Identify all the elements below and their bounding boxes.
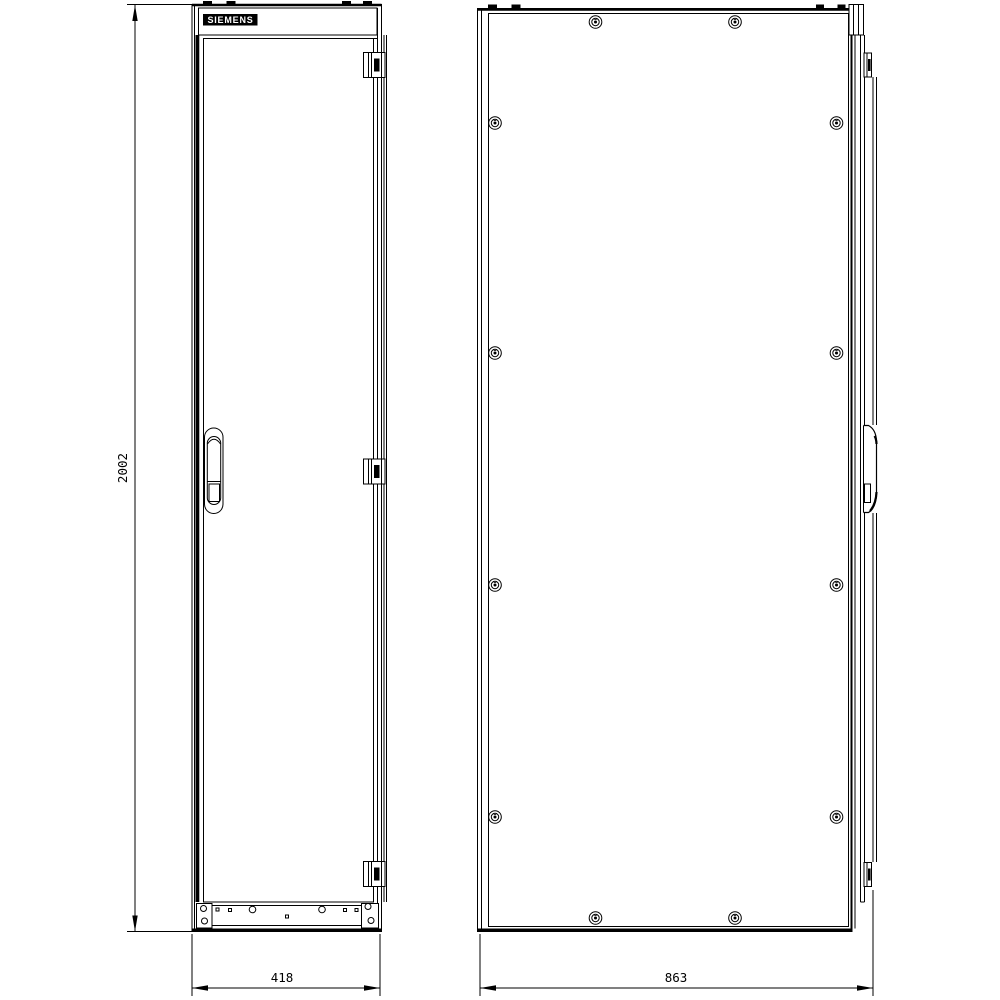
screw-icon xyxy=(830,117,843,130)
screw-icon xyxy=(830,811,843,824)
door-top-rail xyxy=(849,5,864,36)
hinge-top-icon xyxy=(364,53,386,78)
screw-icon xyxy=(489,117,502,130)
height-dimension-label: 2002 xyxy=(115,453,130,483)
width-dimension-label: 418 xyxy=(271,970,294,985)
screw-icon xyxy=(489,811,502,824)
cabinet-technical-drawing: SIEMENS xyxy=(0,0,1000,1000)
door-edge-profile xyxy=(849,5,877,929)
hinge-middle-icon xyxy=(364,459,386,484)
hinge-bottom-side-icon xyxy=(864,863,872,887)
door-handle xyxy=(205,428,224,514)
cabinet-body-side xyxy=(478,9,853,932)
door-handle-profile xyxy=(864,426,877,513)
top-tabs-side xyxy=(488,5,846,9)
depth-dimension-label: 863 xyxy=(665,970,688,985)
screw-icon xyxy=(729,16,742,29)
front-view: SIEMENS xyxy=(192,1,387,932)
hinge-top-side-icon xyxy=(864,53,872,77)
dimension-height: 2002 xyxy=(115,5,192,932)
siemens-logo-text: SIEMENS xyxy=(207,15,253,25)
hinge-bottom-icon xyxy=(364,862,386,887)
siemens-logo: SIEMENS xyxy=(203,14,258,26)
dimension-width: 418 xyxy=(192,934,380,996)
door-gap-shadow xyxy=(196,35,200,902)
drawing-canvas: SIEMENS xyxy=(0,0,1000,1000)
side-view xyxy=(478,5,877,932)
door-panel xyxy=(204,39,374,903)
screw-icon xyxy=(729,912,742,925)
screw-icon xyxy=(489,347,502,360)
screw-icon xyxy=(589,912,602,925)
screw-icon xyxy=(830,579,843,592)
screw-icon xyxy=(830,347,843,360)
screw-icon xyxy=(589,16,602,29)
gland-plate xyxy=(197,904,379,929)
screw-icon xyxy=(489,579,502,592)
